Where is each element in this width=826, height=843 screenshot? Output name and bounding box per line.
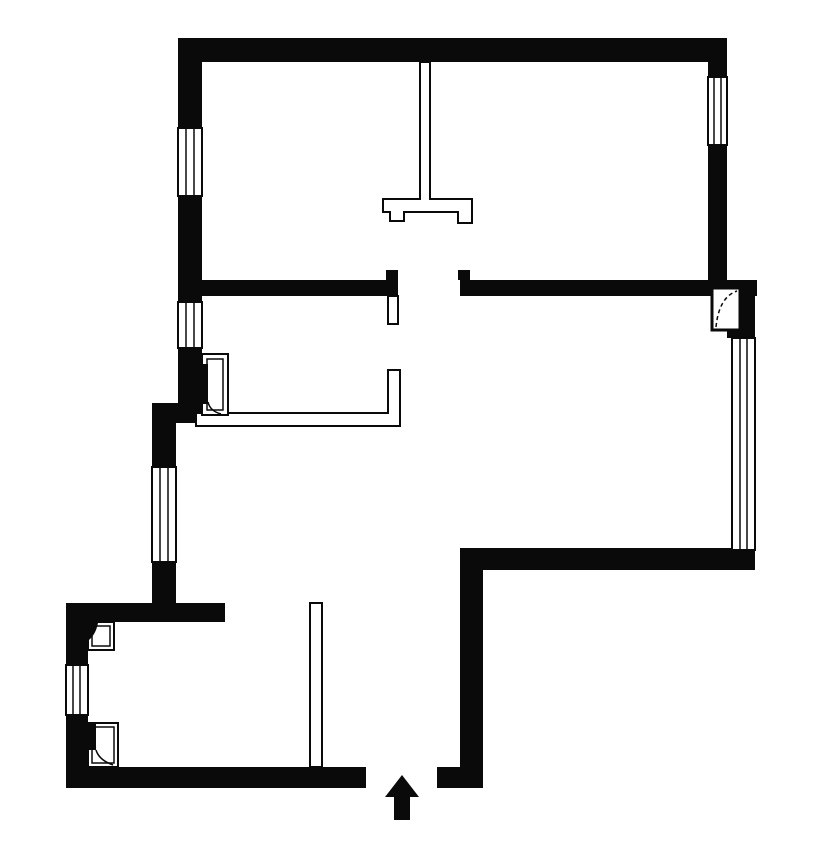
floor-plan-svg (0, 0, 826, 843)
wall-interior-west (202, 270, 398, 296)
door-kitchen (202, 354, 228, 415)
window-west (152, 467, 176, 562)
partition-upper-rooms (383, 62, 472, 223)
wall-utility-left-a (66, 603, 88, 665)
wall-left-jog (152, 403, 202, 423)
wall-right-upper-b (708, 145, 727, 280)
wall-left-upper-a (178, 38, 202, 128)
door-leaf-corridor (388, 296, 398, 324)
wall-left-upper-b (178, 196, 202, 302)
wall-top (178, 38, 727, 62)
partition-utility (310, 603, 322, 767)
window-northeast (708, 77, 727, 145)
wall-living-bottom (460, 548, 755, 570)
door-living (712, 288, 740, 330)
window-northwest-upper (178, 128, 202, 196)
wall-utility-top (66, 603, 225, 622)
wall-bottom (66, 767, 366, 788)
window-utility (66, 665, 88, 715)
door-utility-outer (88, 723, 118, 767)
window-northwest-lower (178, 302, 202, 348)
door-utility-inner (88, 622, 114, 650)
wall-hall-right (460, 548, 483, 788)
wall-right-upper-a (708, 62, 727, 77)
entry-arrow (385, 775, 419, 820)
wall-left-mid-a (152, 423, 176, 467)
window-living-east (732, 338, 755, 550)
floor-plan-canvas (0, 0, 826, 843)
